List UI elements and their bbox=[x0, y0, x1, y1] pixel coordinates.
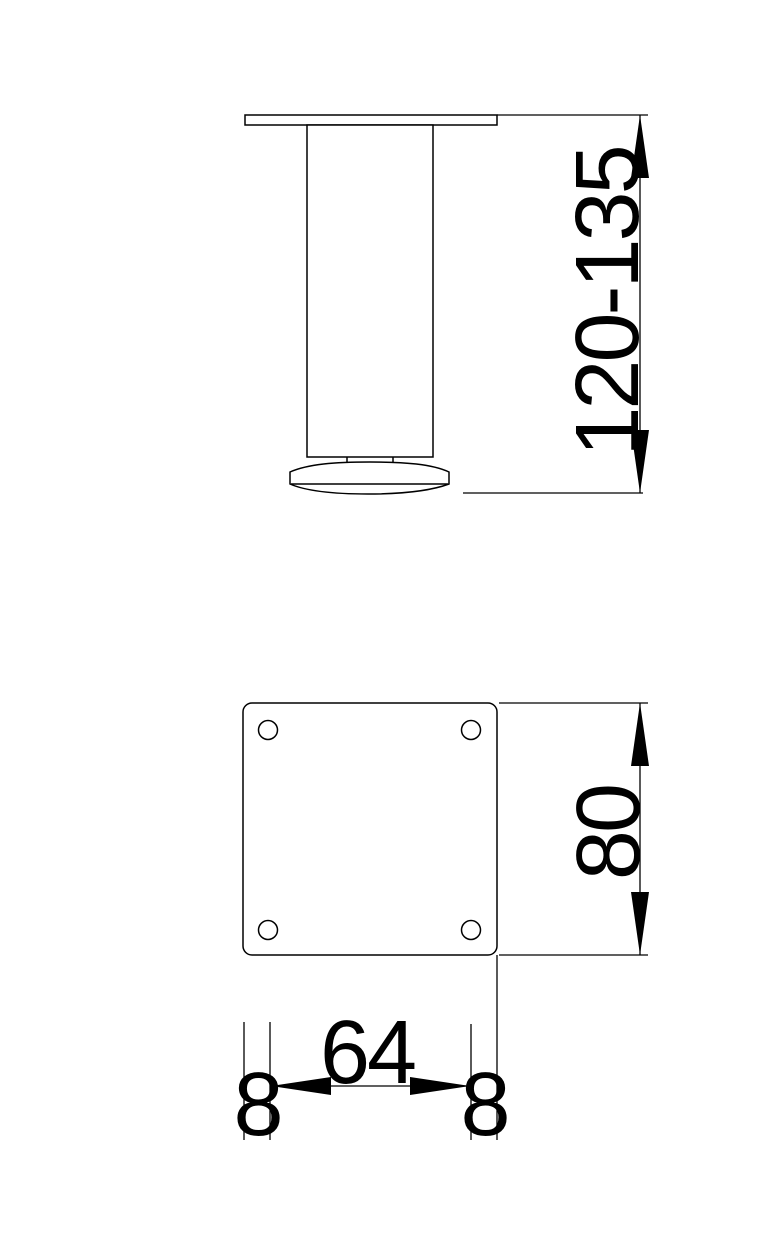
edge-offset-right-label: 8 bbox=[460, 1055, 507, 1155]
height-dimension: 120-135 bbox=[463, 115, 658, 493]
mounting-plate-plan-view bbox=[243, 703, 497, 955]
hole-spacing-label: 64 bbox=[320, 1003, 415, 1103]
mounting-plate-outline bbox=[243, 703, 497, 955]
foot-glide-outline bbox=[290, 462, 449, 494]
height-dimension-label: 120-135 bbox=[558, 147, 658, 456]
mounting-plate-side-outline bbox=[245, 115, 497, 125]
technical-drawing-canvas: 120-135 80 64 8 bbox=[0, 0, 774, 1238]
drawing-sheet: 120-135 80 64 8 bbox=[0, 0, 774, 1238]
plate-size-label: 80 bbox=[559, 786, 659, 880]
hole-spacing-dimensions: 64 8 8 bbox=[233, 955, 507, 1155]
plate-size-arrow-up-icon bbox=[631, 703, 649, 766]
edge-offset-left-label: 8 bbox=[233, 1055, 280, 1155]
plate-size-arrow-down-icon bbox=[631, 892, 649, 955]
plate-size-dimension: 80 bbox=[499, 703, 659, 955]
leg-column-outline bbox=[307, 125, 433, 457]
leg-side-view bbox=[245, 115, 497, 494]
